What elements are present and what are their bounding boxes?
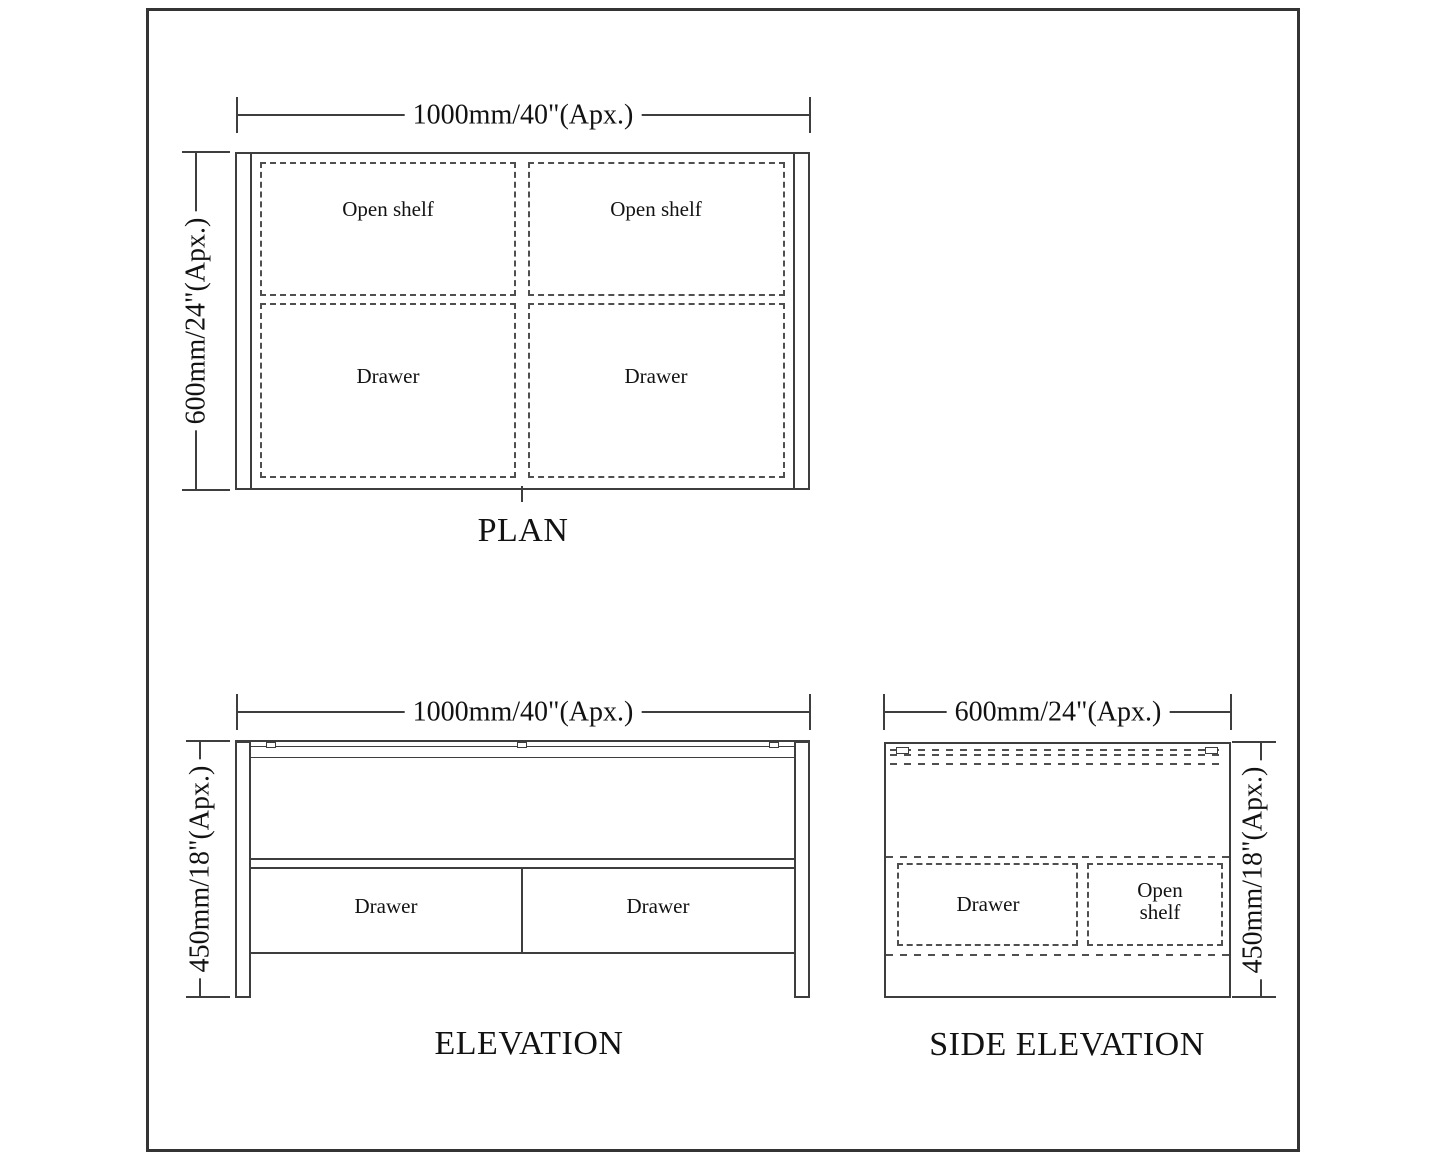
elevation-width-dimension-tick-right: [809, 694, 811, 730]
plan-drawer-right-dashed-outline: [528, 303, 785, 478]
elevation-shelf-top-line: [251, 858, 794, 860]
plan-open-shelf-left-dashed-outline: [260, 162, 516, 296]
elevation-width-dimension-text: 1000mm/40"(Apx.): [405, 697, 642, 726]
plan-drawer-left-dashed-outline: [260, 303, 516, 478]
side-elevation-height-dimension-text: 450mm/18"(Apx.): [1238, 761, 1267, 980]
plan-depth-dimension-tick-top: [182, 151, 230, 153]
side-elevation-shelf-hidden-line-bottom: [886, 954, 1229, 956]
elevation-leg-left: [235, 741, 251, 998]
plan-open-shelf-right-label: Open shelf: [610, 198, 702, 220]
side-elevation-width-dimension-tick-right: [1230, 694, 1232, 730]
technical-drawing-canvas: 1000mm/40"(Apx.) 600mm/24"(Apx.) Open sh…: [0, 0, 1445, 1156]
side-elevation-open-shelf-label: Open shelf: [1118, 879, 1202, 923]
elevation-height-dimension-text: 450mm/18"(Apx.): [185, 760, 214, 979]
elevation-title: ELEVATION: [435, 1026, 624, 1062]
side-elevation-fastener-mark-right: [1205, 747, 1218, 754]
elevation-fastener-mark-center: [517, 742, 527, 748]
side-elevation-drawer-label: Drawer: [957, 893, 1020, 915]
plan-width-dimension-tick-right: [809, 97, 811, 133]
plan-width-dimension-text: 1000mm/40"(Apx.): [405, 100, 642, 129]
plan-title: PLAN: [478, 513, 569, 549]
plan-drawer-left-label: Drawer: [357, 365, 420, 387]
elevation-top-rail-line: [251, 757, 794, 758]
elevation-drawer-divider-line: [521, 869, 523, 953]
side-elevation-top-hidden-line-1: [890, 749, 1225, 751]
elevation-drawer-left-label: Drawer: [355, 895, 418, 917]
elevation-height-dimension-tick-top: [186, 740, 230, 742]
plan-open-shelf-right-dashed-outline: [528, 162, 785, 296]
plan-depth-dimension-tick-bottom: [182, 489, 230, 491]
side-elevation-title: SIDE ELEVATION: [929, 1027, 1205, 1063]
plan-drawer-right-label: Drawer: [625, 365, 688, 387]
side-elevation-height-dimension-tick-top: [1232, 741, 1276, 743]
side-elevation-height-dimension-tick-bottom: [1232, 996, 1276, 998]
elevation-fastener-mark-right: [769, 742, 779, 748]
elevation-drawer-right-label: Drawer: [627, 895, 690, 917]
side-elevation-fastener-mark-left: [896, 747, 909, 754]
plan-width-dimension-tick-left: [236, 97, 238, 133]
side-elevation-width-dimension-tick-left: [883, 694, 885, 730]
side-elevation-shelf-hidden-line-top: [886, 856, 1229, 858]
plan-open-shelf-left-label: Open shelf: [342, 198, 434, 220]
elevation-height-dimension-tick-bottom: [186, 996, 230, 998]
side-elevation-width-dimension-text: 600mm/24"(Apx.): [947, 697, 1170, 726]
plan-side-panel-line-right: [793, 154, 795, 488]
elevation-fastener-mark-left: [266, 742, 276, 748]
plan-side-panel-line-left: [250, 154, 252, 488]
plan-bottom-center-tick: [521, 486, 523, 502]
side-elevation-top-hidden-line-3: [890, 763, 1225, 765]
elevation-leg-right: [794, 741, 810, 998]
plan-depth-dimension-text: 600mm/24"(Apx.): [181, 212, 210, 431]
elevation-width-dimension-tick-left: [236, 694, 238, 730]
side-elevation-top-hidden-line-2: [890, 754, 1225, 756]
